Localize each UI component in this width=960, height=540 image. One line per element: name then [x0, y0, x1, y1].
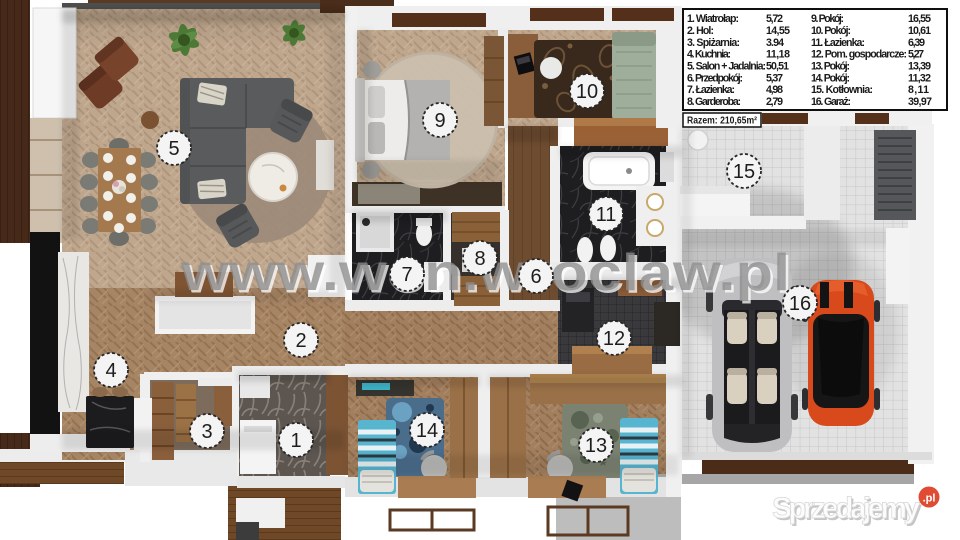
- svg-text:13: 13: [585, 435, 607, 457]
- svg-text:16: 16: [789, 293, 811, 315]
- svg-text:1. Wiatrołap:: 1. Wiatrołap:: [687, 13, 739, 25]
- svg-text:6: 6: [530, 266, 541, 288]
- svg-text:12. Pom. gospodarcze:: 12. Pom. gospodarcze:: [811, 49, 907, 61]
- svg-text:4: 4: [105, 360, 116, 382]
- svg-text:14. Pokój:: 14. Pokój:: [811, 73, 850, 85]
- svg-text:3.94: 3.94: [766, 37, 784, 49]
- svg-text:15: 15: [733, 161, 755, 183]
- svg-text:5: 5: [168, 138, 179, 160]
- svg-text:9. Pokój:: 9. Pokój:: [811, 13, 844, 25]
- svg-text:2: 2: [295, 330, 306, 352]
- svg-text:1: 1: [290, 430, 301, 452]
- svg-text:50,51: 50,51: [766, 61, 789, 73]
- svg-text:39,97: 39,97: [908, 96, 932, 108]
- svg-text:11. Łazienka:: 11. Łazienka:: [811, 37, 865, 49]
- svg-text:4. Kuchnia:: 4. Kuchnia:: [687, 49, 731, 61]
- svg-text:4,98: 4,98: [766, 84, 783, 96]
- svg-text:3. Spiżarnia:: 3. Spiżarnia:: [687, 37, 740, 49]
- svg-text:6,39: 6,39: [908, 37, 925, 49]
- svg-text:8. Garderoba:: 8. Garderoba:: [687, 96, 741, 108]
- svg-text:8,11: 8,11: [908, 84, 929, 96]
- svg-text:5,27: 5,27: [908, 49, 924, 61]
- svg-text:11: 11: [596, 204, 617, 226]
- svg-text:14,55: 14,55: [766, 25, 790, 37]
- svg-text:7: 7: [401, 264, 412, 286]
- svg-text:.pl: .pl: [923, 493, 936, 505]
- svg-text:Sprzedajemy: Sprzedajemy: [772, 492, 920, 525]
- svg-text:13. Pokój:: 13. Pokój:: [811, 61, 850, 73]
- svg-text:10: 10: [576, 81, 598, 103]
- svg-text:11,32: 11,32: [908, 73, 931, 85]
- svg-text:Razem: 210,65m²: Razem: 210,65m²: [687, 116, 758, 127]
- svg-text:12: 12: [603, 328, 625, 350]
- svg-text:14: 14: [416, 420, 438, 442]
- svg-text:9: 9: [434, 110, 445, 132]
- svg-text:6. Przedpokój:: 6. Przedpokój:: [687, 73, 743, 85]
- svg-text:5,37: 5,37: [766, 73, 783, 85]
- svg-text:10. Pokój:: 10. Pokój:: [811, 25, 851, 37]
- svg-text:13,39: 13,39: [908, 61, 931, 73]
- svg-text:5,72: 5,72: [766, 13, 783, 25]
- svg-text:2. Hol:: 2. Hol:: [687, 25, 714, 37]
- svg-text:2,79: 2,79: [766, 96, 783, 108]
- svg-text:7. Łazienka:: 7. Łazienka:: [687, 84, 735, 96]
- svg-text:11,18: 11,18: [766, 49, 790, 61]
- svg-text:10,61: 10,61: [908, 25, 931, 37]
- svg-text:8: 8: [474, 248, 485, 270]
- svg-text:16,55: 16,55: [908, 13, 931, 25]
- svg-text:3: 3: [201, 421, 212, 443]
- svg-text:15. Kotłownia:: 15. Kotłownia:: [811, 84, 873, 96]
- svg-text:5. Salon + Jadalnia:: 5. Salon + Jadalnia:: [687, 61, 766, 73]
- svg-text:16. Garaż:: 16. Garaż:: [811, 96, 851, 108]
